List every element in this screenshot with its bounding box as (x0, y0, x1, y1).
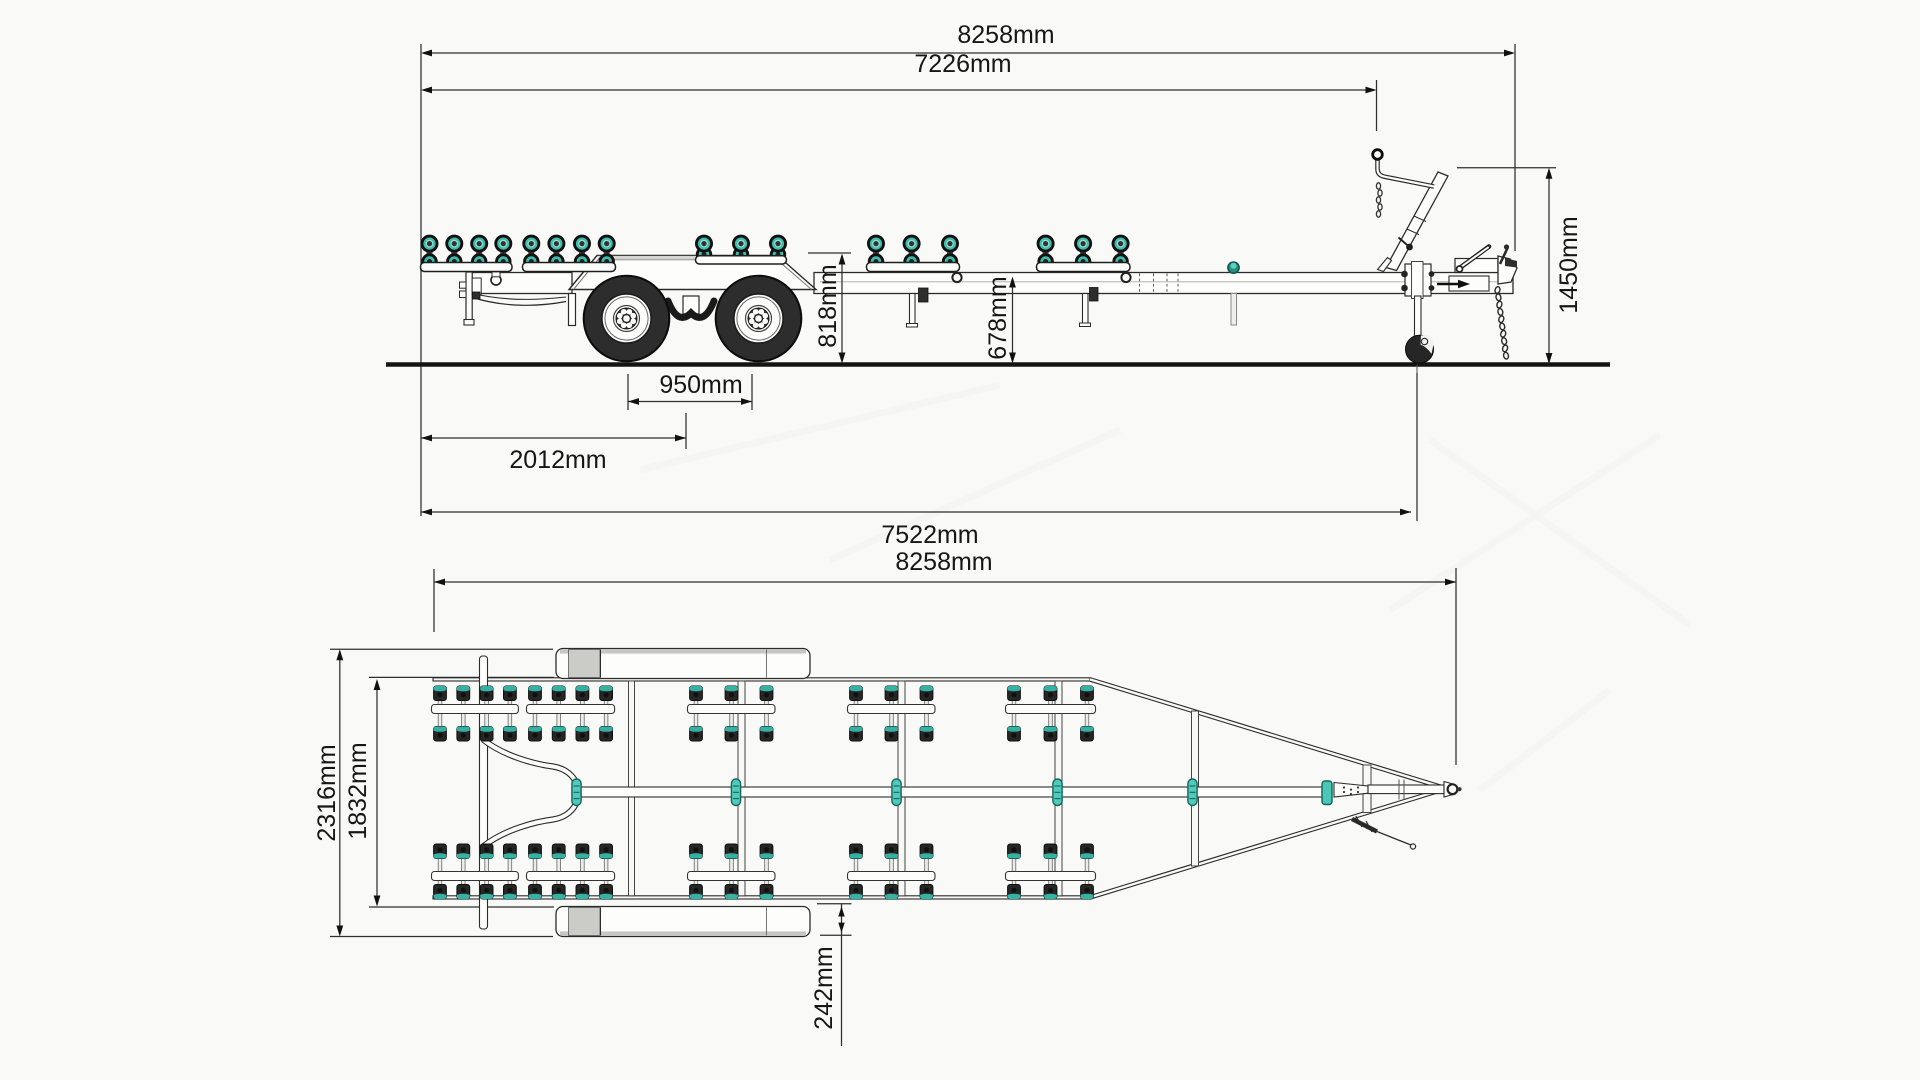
svg-text:7522mm: 7522mm (881, 521, 978, 549)
svg-text:7226mm: 7226mm (914, 50, 1011, 78)
svg-text:8258mm: 8258mm (957, 21, 1054, 49)
svg-text:2012mm: 2012mm (509, 446, 606, 474)
svg-text:678mm: 678mm (984, 276, 1012, 359)
svg-text:818mm: 818mm (814, 264, 842, 347)
svg-text:242mm: 242mm (810, 946, 838, 1029)
svg-text:2316mm: 2316mm (313, 744, 341, 841)
svg-text:1832mm: 1832mm (344, 742, 372, 839)
svg-text:1450mm: 1450mm (1555, 216, 1583, 313)
svg-text:950mm: 950mm (659, 371, 742, 399)
svg-text:8258mm: 8258mm (895, 548, 992, 576)
